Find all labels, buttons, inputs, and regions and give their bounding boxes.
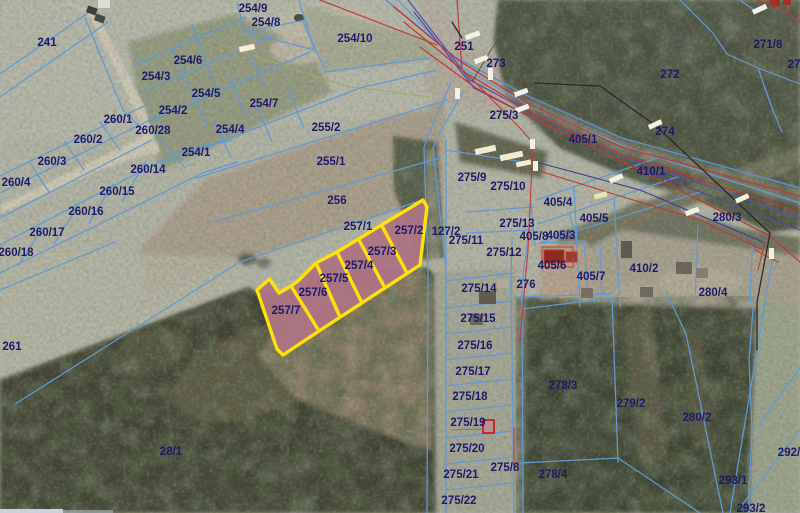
svg-text:275/18: 275/18 bbox=[452, 391, 488, 403]
svg-text:260/4: 260/4 bbox=[2, 177, 31, 189]
svg-text:410/1: 410/1 bbox=[637, 166, 666, 178]
svg-text:260/3: 260/3 bbox=[38, 156, 67, 168]
svg-text:275/15: 275/15 bbox=[460, 313, 496, 325]
svg-text:272: 272 bbox=[660, 69, 679, 81]
svg-text:260/2: 260/2 bbox=[74, 134, 103, 146]
svg-text:28/1: 28/1 bbox=[160, 446, 183, 458]
svg-text:254/4: 254/4 bbox=[216, 124, 245, 136]
svg-text:254/6: 254/6 bbox=[174, 55, 203, 67]
svg-text:278/3: 278/3 bbox=[549, 380, 578, 392]
svg-text:275/13: 275/13 bbox=[499, 218, 534, 230]
svg-text:273: 273 bbox=[486, 58, 505, 70]
svg-text:293/1: 293/1 bbox=[719, 475, 748, 487]
svg-text:405/5: 405/5 bbox=[580, 213, 609, 225]
svg-text:260/17: 260/17 bbox=[29, 227, 64, 239]
svg-text:275/12: 275/12 bbox=[486, 247, 521, 259]
svg-text:260/16: 260/16 bbox=[68, 206, 103, 218]
svg-text:405/3: 405/3 bbox=[547, 230, 576, 242]
svg-text:275/22: 275/22 bbox=[441, 495, 476, 507]
svg-text:275/21: 275/21 bbox=[443, 469, 479, 481]
svg-text:260/18: 260/18 bbox=[0, 247, 34, 259]
svg-text:251: 251 bbox=[454, 41, 474, 53]
svg-text:261: 261 bbox=[2, 341, 22, 353]
svg-text:280/3: 280/3 bbox=[713, 212, 742, 224]
svg-text:274: 274 bbox=[655, 126, 675, 138]
svg-text:293/2: 293/2 bbox=[737, 503, 766, 513]
svg-text:255/2: 255/2 bbox=[312, 122, 341, 134]
svg-text:410/2: 410/2 bbox=[630, 263, 659, 275]
svg-text:254/5: 254/5 bbox=[192, 88, 221, 100]
svg-text:275/10: 275/10 bbox=[490, 181, 525, 193]
svg-text:27: 27 bbox=[788, 59, 800, 71]
svg-text:257/6: 257/6 bbox=[299, 287, 328, 299]
svg-text:254/7: 254/7 bbox=[250, 98, 279, 110]
svg-text:257/2: 257/2 bbox=[395, 225, 424, 237]
svg-text:260/28: 260/28 bbox=[135, 125, 171, 137]
svg-text:271/8: 271/8 bbox=[754, 39, 783, 51]
svg-text:241: 241 bbox=[37, 37, 57, 49]
svg-text:254/8: 254/8 bbox=[252, 17, 281, 29]
svg-text:405/7: 405/7 bbox=[577, 271, 606, 283]
svg-text:257/3: 257/3 bbox=[368, 246, 397, 258]
svg-text:279/2: 279/2 bbox=[617, 398, 646, 410]
svg-text:260/1: 260/1 bbox=[104, 114, 133, 126]
svg-text:257/5: 257/5 bbox=[320, 273, 349, 285]
svg-text:280/4: 280/4 bbox=[699, 287, 728, 299]
svg-text:275/16: 275/16 bbox=[457, 340, 492, 352]
svg-text:280/2: 280/2 bbox=[683, 412, 712, 424]
svg-text:254/10: 254/10 bbox=[337, 33, 372, 45]
svg-text:276: 276 bbox=[516, 279, 535, 291]
svg-text:260/15: 260/15 bbox=[99, 186, 135, 198]
svg-text:254/2: 254/2 bbox=[159, 105, 188, 117]
svg-text:257/1: 257/1 bbox=[344, 221, 373, 233]
svg-text:405/1: 405/1 bbox=[569, 134, 598, 146]
svg-text:257/4: 257/4 bbox=[345, 260, 374, 272]
svg-text:275/11: 275/11 bbox=[449, 235, 484, 247]
svg-text:260/14: 260/14 bbox=[130, 164, 166, 176]
svg-text:405/4: 405/4 bbox=[544, 197, 573, 209]
svg-text:275/19: 275/19 bbox=[450, 417, 485, 429]
svg-text:292/: 292/ bbox=[778, 447, 800, 459]
svg-text:275/8: 275/8 bbox=[491, 462, 520, 474]
svg-text:275/20: 275/20 bbox=[449, 443, 484, 455]
svg-text:278/4: 278/4 bbox=[539, 469, 568, 481]
svg-text:254/3: 254/3 bbox=[142, 71, 171, 83]
svg-text:257/7: 257/7 bbox=[272, 305, 301, 317]
svg-text:275/9: 275/9 bbox=[458, 172, 487, 184]
svg-text:275/3: 275/3 bbox=[490, 110, 519, 122]
svg-text:275/17: 275/17 bbox=[455, 366, 490, 378]
svg-text:254/1: 254/1 bbox=[182, 147, 211, 159]
svg-text:405/6: 405/6 bbox=[538, 260, 567, 272]
svg-text:255/1: 255/1 bbox=[317, 156, 346, 168]
svg-text:275/14: 275/14 bbox=[461, 283, 497, 295]
svg-text:254/9: 254/9 bbox=[239, 3, 268, 15]
svg-text:256: 256 bbox=[327, 195, 346, 207]
svg-text:405/8: 405/8 bbox=[520, 231, 549, 243]
